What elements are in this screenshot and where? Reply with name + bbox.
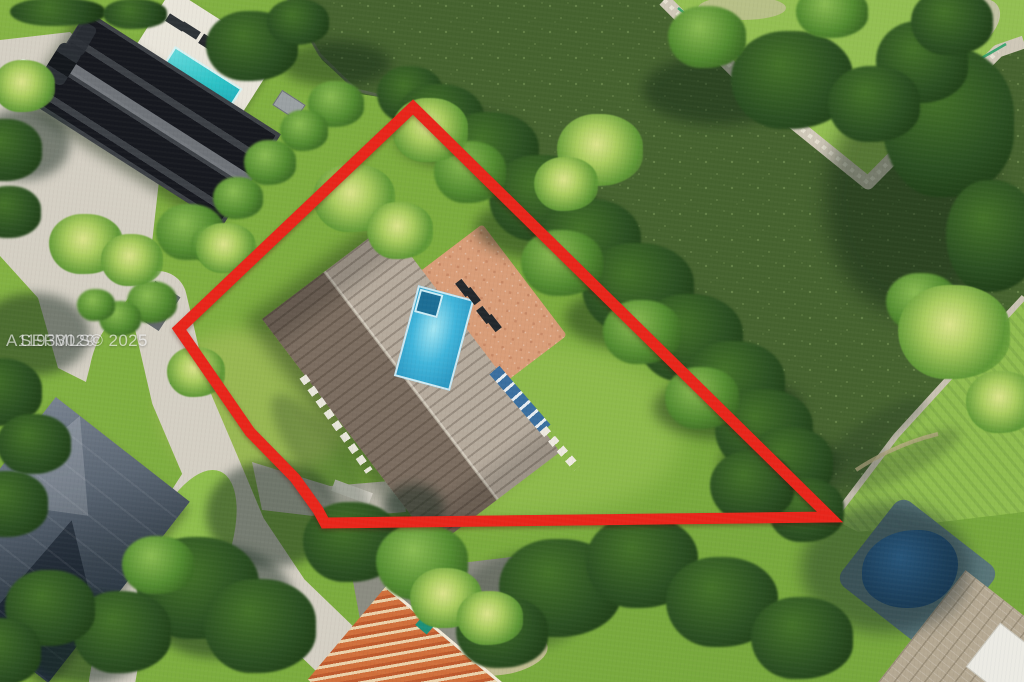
property-boundary-line	[179, 107, 830, 523]
boundary-layer	[0, 0, 1024, 682]
aerial-photo: A11933029SEFMLS© 2025	[0, 0, 1024, 682]
mls-brand: SEFMLS© 2025	[20, 331, 148, 351]
mls-watermark: A11933029SEFMLS© 2025	[6, 331, 20, 351]
